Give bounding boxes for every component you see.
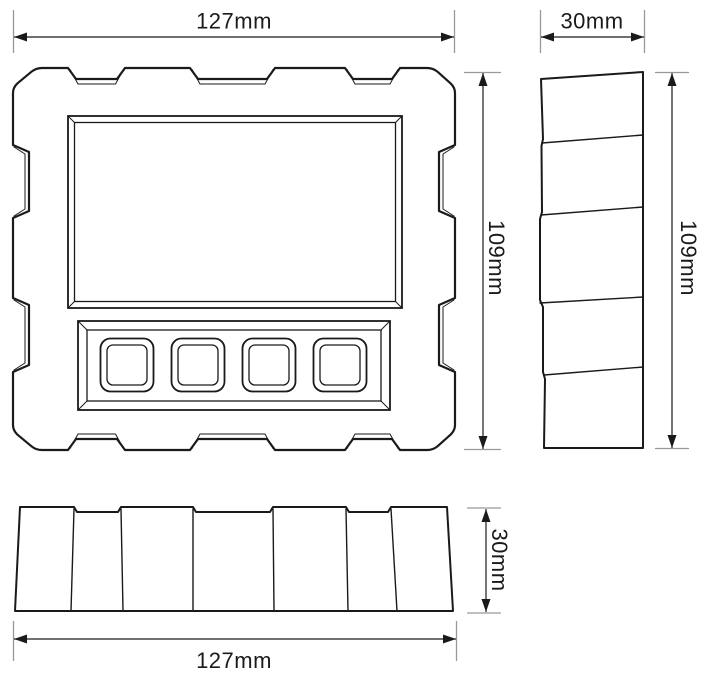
side-segment-divider	[540, 297, 643, 303]
button-panel	[78, 321, 390, 410]
bottom-notch-chamfer	[192, 434, 273, 449]
screen-bevel-line	[68, 302, 75, 309]
dim-side-height: 109mm	[655, 73, 701, 449]
drawing-svg: 127mm 30mm 109mm 109mm 30mm	[0, 0, 709, 676]
screen-outer-frame	[68, 116, 402, 308]
left-recess-chamfer	[14, 147, 25, 216]
arrow-left-icon	[541, 33, 554, 42]
side-housing-outline	[540, 72, 643, 448]
side-segment-divider	[541, 207, 643, 215]
screen-inner-frame	[75, 123, 396, 302]
front-view	[13, 68, 455, 450]
dim-front-width: 127mm	[14, 9, 455, 54]
bottom-segment-divider	[346, 509, 348, 611]
button-2-inner	[178, 345, 218, 385]
side-segment-divider	[544, 367, 643, 375]
button-3[interactable]	[243, 339, 296, 392]
arrow-right-icon	[631, 33, 644, 42]
arrow-left-icon	[14, 635, 27, 644]
dim-bottom-height: 30mm	[467, 508, 512, 613]
arrow-down-icon	[482, 599, 491, 612]
front-housing-outline	[13, 68, 455, 450]
right-recess-chamfer	[443, 147, 454, 216]
arrow-up-icon	[482, 509, 491, 522]
panel-bevel-line	[381, 321, 390, 330]
bottom-notch-chamfer	[70, 434, 124, 449]
panel-bevel-line	[78, 321, 87, 330]
button-1-inner	[107, 345, 147, 385]
arrow-up-icon	[479, 73, 488, 86]
dim-bottom-width-label: 127mm	[196, 648, 272, 673]
dim-front-height: 109mm	[464, 73, 509, 450]
dim-side-width-label: 30mm	[560, 9, 623, 34]
screen	[68, 116, 402, 308]
button-1[interactable]	[101, 339, 154, 392]
dim-side-height-label: 109mm	[676, 220, 701, 296]
dim-bottom-height-label: 30mm	[487, 528, 512, 591]
right-recess-chamfer	[443, 300, 454, 370]
button-3-inner	[249, 345, 289, 385]
panel-bevel-line	[381, 401, 390, 410]
bottom-notch-chamfer	[347, 434, 398, 449]
top-notch-chamfer	[347, 70, 398, 85]
screen-bevel-line	[68, 116, 75, 123]
arrow-right-icon	[443, 635, 456, 644]
panel-inner-frame	[87, 330, 381, 401]
arrow-down-icon	[479, 436, 488, 449]
button-2[interactable]	[172, 339, 225, 392]
dim-front-width-label: 127mm	[196, 9, 272, 34]
arrow-right-icon	[441, 33, 454, 42]
top-notch-chamfer	[70, 70, 124, 85]
bottom-segment-divider	[391, 509, 397, 611]
dim-side-width: 30mm	[541, 9, 645, 54]
bottom-housing-outline	[15, 507, 453, 611]
side-view	[540, 72, 643, 448]
bottom-view	[15, 507, 453, 611]
button-4-inner	[320, 345, 360, 385]
arrow-left-icon	[14, 33, 27, 42]
bottom-segment-divider	[121, 509, 123, 611]
panel-outer-frame	[78, 321, 390, 410]
dim-bottom-width: 127mm	[14, 621, 457, 673]
left-recess-chamfer	[14, 300, 25, 370]
arrow-up-icon	[668, 73, 677, 86]
button-4[interactable]	[314, 339, 367, 392]
screen-bevel-line	[396, 116, 403, 123]
screen-bevel-line	[396, 302, 403, 309]
bottom-segment-divider	[273, 509, 274, 611]
dim-front-height-label: 109mm	[484, 220, 509, 296]
technical-drawing-canvas: 127mm 30mm 109mm 109mm 30mm	[0, 0, 709, 676]
panel-bevel-line	[78, 401, 87, 410]
arrow-down-icon	[668, 435, 677, 448]
top-notch-chamfer	[192, 70, 273, 85]
side-segment-divider	[542, 135, 643, 143]
bottom-segment-divider	[71, 509, 74, 611]
